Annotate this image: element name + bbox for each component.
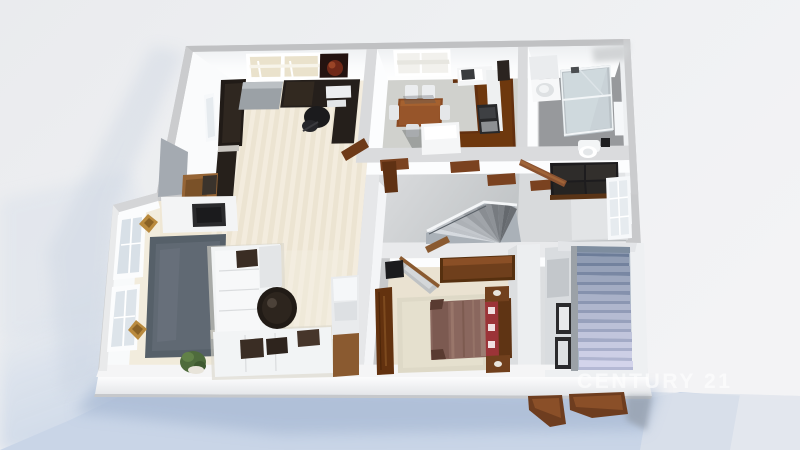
- svg-text:CENTURY 21: CENTURY 21: [577, 370, 733, 393]
